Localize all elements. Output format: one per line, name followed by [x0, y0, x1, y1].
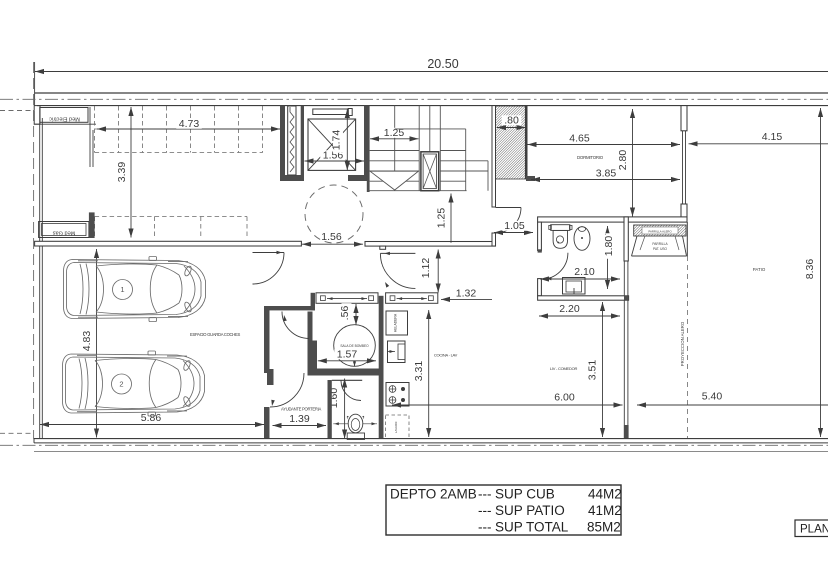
svg-text:AYUDANTE PORTERIA: AYUDANTE PORTERIA: [281, 407, 321, 412]
svg-text:1.25: 1.25: [436, 208, 448, 229]
svg-text:PLANTA: PLANTA: [800, 524, 828, 536]
svg-text:6.00: 6.00: [554, 392, 575, 404]
svg-text:1.05: 1.05: [504, 220, 525, 232]
svg-text:2.10: 2.10: [574, 266, 595, 278]
svg-text:41M2: 41M2: [588, 503, 622, 518]
svg-text:85M2: 85M2: [587, 520, 621, 535]
svg-text:1.39: 1.39: [289, 413, 310, 425]
svg-text:PAT. USO: PAT. USO: [653, 247, 668, 251]
svg-text:44M2: 44M2: [588, 487, 622, 502]
svg-text:20.50: 20.50: [427, 57, 458, 71]
svg-text:SUP TOTAL: SUP TOTAL: [495, 520, 569, 535]
svg-text:SALA DE BOMBEO: SALA DE BOMBEO: [340, 344, 369, 348]
svg-text:HELADERA: HELADERA: [394, 313, 398, 332]
svg-text:DORMITORIO: DORMITORIO: [577, 155, 604, 160]
svg-text:3.85: 3.85: [596, 168, 617, 180]
svg-text:---: ---: [478, 520, 492, 535]
svg-text:2: 2: [119, 380, 123, 389]
svg-text:4.83: 4.83: [81, 331, 93, 352]
svg-text:1.57: 1.57: [337, 349, 358, 361]
svg-text:SUP CUB: SUP CUB: [495, 487, 555, 502]
svg-text:1.80: 1.80: [603, 236, 615, 257]
svg-text:---: ---: [478, 487, 492, 502]
svg-text:Med Electric: Med Electric: [49, 116, 80, 122]
svg-text:1: 1: [120, 285, 124, 294]
svg-text:SUP PATIO: SUP PATIO: [495, 503, 565, 518]
svg-text:1.12: 1.12: [420, 258, 432, 279]
svg-text:PATIO: PATIO: [753, 267, 766, 272]
svg-text:ESPACIO GUARDA COCHES: ESPACIO GUARDA COCHES: [190, 332, 240, 337]
svg-text:LIV - COMEDOR: LIV - COMEDOR: [550, 366, 578, 371]
svg-text:PROYECCION ALERO: PROYECCION ALERO: [680, 321, 685, 366]
svg-text:1.32: 1.32: [456, 288, 477, 300]
svg-text:COCINA - LAV: COCINA - LAV: [434, 353, 458, 358]
svg-text:---: ---: [478, 503, 492, 518]
svg-text:PARRILLA: PARRILLA: [652, 242, 668, 246]
svg-text:1.56: 1.56: [321, 231, 342, 243]
svg-text:.80: .80: [504, 115, 519, 127]
svg-text:2.80: 2.80: [617, 150, 629, 171]
svg-text:Med Gas: Med Gas: [52, 230, 75, 236]
svg-text:4.15: 4.15: [762, 131, 783, 143]
svg-text:5.86: 5.86: [141, 412, 162, 424]
svg-text:3.39: 3.39: [116, 162, 128, 183]
svg-text:3.31: 3.31: [413, 361, 425, 382]
svg-text:1.74: 1.74: [331, 130, 343, 151]
svg-text:4.73: 4.73: [179, 118, 200, 130]
svg-text:2.20: 2.20: [559, 303, 580, 315]
svg-text:LAVARR.: LAVARR.: [394, 421, 398, 434]
svg-text:DEPTO 2AMB: DEPTO 2AMB: [390, 487, 477, 502]
svg-text:PARRILLA ALERO: PARRILLA ALERO: [648, 229, 672, 233]
svg-text:5.40: 5.40: [702, 391, 723, 403]
svg-text:.56: .56: [339, 306, 351, 321]
svg-text:3.51: 3.51: [587, 360, 599, 381]
svg-text:8.36: 8.36: [804, 259, 816, 280]
svg-text:4.65: 4.65: [569, 133, 590, 145]
